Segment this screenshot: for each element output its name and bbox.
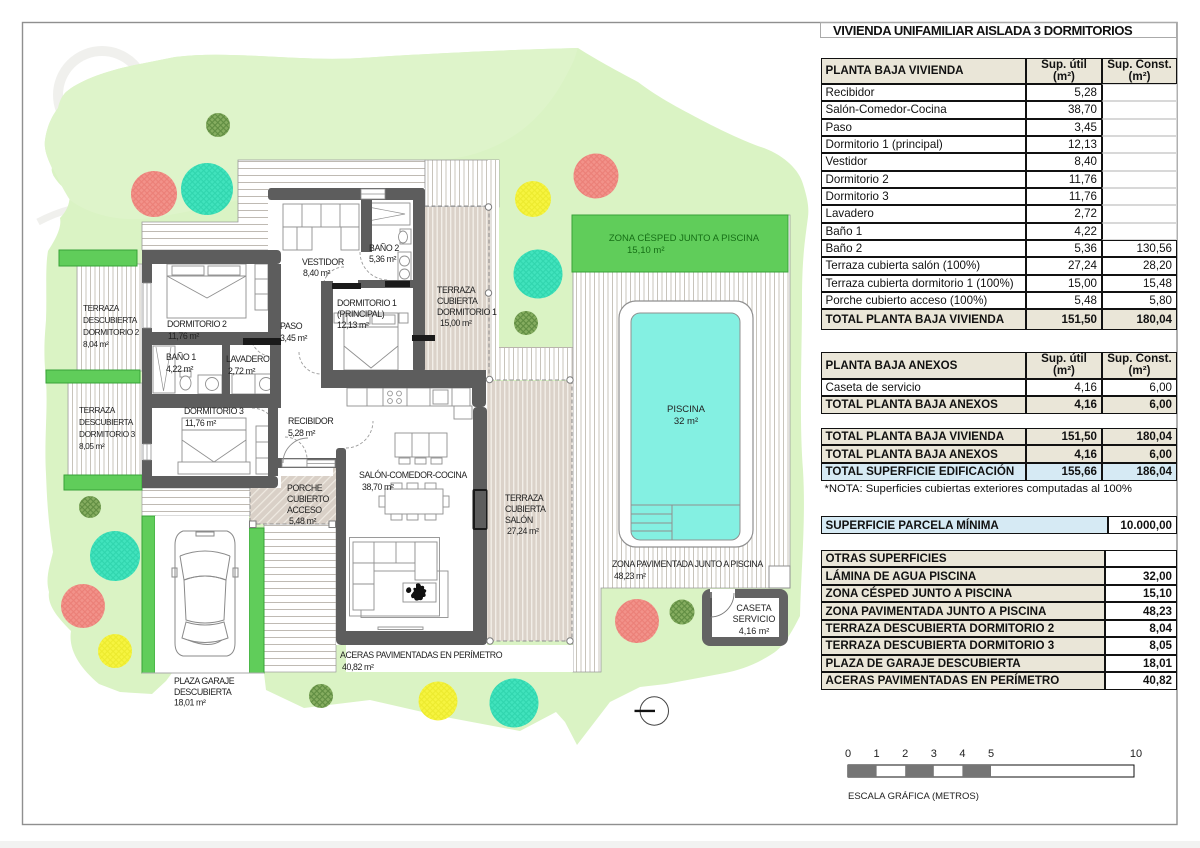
svg-text:0: 0 (845, 748, 851, 760)
svg-text:2: 2 (902, 748, 908, 760)
svg-text:ESCALA GRÁFICA (METROS): ESCALA GRÁFICA (METROS) (848, 791, 979, 802)
svg-text:10: 10 (1130, 748, 1142, 760)
svg-text:1: 1 (874, 748, 880, 760)
svg-text:3: 3 (931, 748, 937, 760)
svg-text:4: 4 (959, 748, 965, 760)
svg-text:5: 5 (988, 748, 994, 760)
